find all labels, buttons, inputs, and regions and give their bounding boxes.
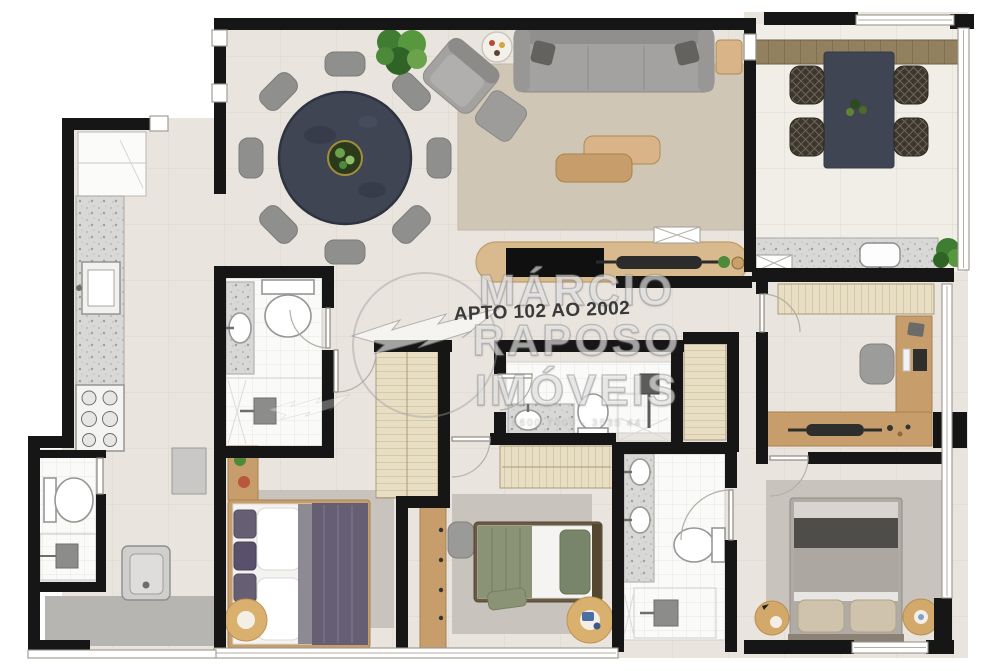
outdoor-plant-icon	[850, 99, 860, 109]
console-plant-icon	[718, 256, 730, 268]
refrigerator	[78, 132, 146, 196]
mbath-shower-head-icon	[654, 600, 678, 626]
toy-icon	[582, 612, 594, 621]
bed-top-strip	[794, 502, 898, 518]
bath2-sink-icon	[515, 410, 541, 430]
living-window	[212, 30, 227, 46]
sofa	[514, 28, 714, 92]
sofa-side-table	[716, 40, 742, 74]
bedroom2-door-leaf	[452, 437, 490, 441]
bedroom2-chair	[448, 522, 474, 558]
service-window-sill	[28, 650, 216, 658]
service-shower-head-icon	[56, 544, 78, 568]
table-texture	[304, 126, 336, 144]
bath1-toilet-icon	[265, 295, 311, 337]
pillow	[234, 510, 256, 538]
blanket-fold	[298, 504, 314, 644]
dark-blanket-band	[794, 518, 898, 548]
drinks-side-table	[482, 32, 512, 62]
nightstand-item	[918, 614, 924, 620]
floor-plan-drawing	[0, 0, 1000, 671]
bed-cover	[794, 548, 898, 594]
office-wardrobe	[778, 284, 934, 314]
knob	[439, 528, 443, 532]
balcony-sink-icon	[860, 243, 900, 267]
bath2-toilet-icon	[578, 394, 608, 430]
document-icon	[903, 349, 910, 371]
table-texture	[358, 182, 386, 198]
centerpiece-leaf	[346, 156, 355, 165]
knob	[439, 616, 443, 620]
pillow	[798, 600, 844, 632]
service-toilet-icon	[55, 478, 93, 522]
outdoor-plant-leaf	[846, 108, 854, 116]
table-texture	[358, 116, 378, 128]
desk-item	[907, 322, 925, 337]
soundbar-icon	[616, 256, 702, 269]
bathroom1-door-leaf	[326, 308, 330, 348]
green-duvet	[478, 526, 532, 598]
bedroom2-desk-unit	[420, 504, 446, 648]
balcony-door	[744, 34, 756, 60]
desk-dot	[906, 425, 911, 430]
drink-icon	[494, 50, 500, 56]
service-cabinet	[172, 448, 206, 494]
bath1-toilet-tank	[262, 280, 314, 294]
drink-icon	[489, 40, 495, 46]
shaft-x-box-living	[654, 227, 700, 243]
master-bath-door-leaf	[729, 490, 733, 540]
monitor-icon	[913, 349, 927, 371]
cabinet-flower-icon	[238, 476, 250, 488]
laundry-faucet-icon	[143, 582, 150, 589]
pillow-white	[257, 508, 301, 570]
headboard	[592, 524, 601, 602]
round-rug-center	[237, 611, 255, 629]
bedroom2-single-bed	[474, 522, 602, 611]
service-bath-door-leaf	[97, 458, 103, 494]
mbath-sink2-icon	[630, 507, 650, 533]
floor-plan: MÁRCIO RAPOSO IMÓVEIS 9600 7000 · 3535 4…	[0, 0, 1000, 671]
drink-icon	[499, 42, 505, 48]
centerpiece-leaf	[335, 148, 345, 158]
kitchen-faucet-icon	[76, 285, 82, 291]
plant-leaf	[407, 49, 427, 69]
pillow	[234, 542, 256, 570]
nightstand-ring	[770, 616, 782, 628]
purple-duvet	[312, 503, 368, 645]
bath2-shower-head-icon	[640, 374, 659, 394]
knob	[439, 588, 443, 592]
pillow	[850, 600, 896, 632]
mbath-toilet-icon	[674, 528, 714, 562]
master-double-bed	[788, 498, 904, 648]
service-entry-door-frame	[150, 116, 168, 131]
master-bedroom-door-leaf	[770, 456, 808, 460]
tv-icon	[506, 248, 604, 277]
centerpiece-leaf	[339, 161, 347, 169]
pillow	[234, 574, 256, 602]
living-window	[212, 84, 227, 102]
kitchen-sink-basin	[88, 270, 114, 306]
bathroom2-door-leaf	[498, 374, 532, 378]
office-chair	[860, 344, 894, 384]
plant-leaf	[376, 47, 394, 65]
toy-icon	[594, 623, 601, 630]
service-gray-floor	[45, 596, 215, 646]
knob	[439, 558, 443, 562]
desk-dot	[887, 425, 893, 431]
mbath-toilet-tank	[712, 528, 725, 562]
bedroom1-door-leaf	[334, 350, 338, 392]
console-bowl-icon	[732, 257, 744, 269]
green-pillow	[560, 530, 590, 594]
laptop-icon	[806, 424, 864, 436]
office-door-leaf	[760, 294, 764, 332]
desk-dot	[898, 432, 903, 437]
mbath-sink1-icon	[630, 459, 650, 485]
hall-closet	[684, 344, 726, 440]
outdoor-plant-leaf	[859, 106, 867, 114]
table-centerpiece-plant-icon	[328, 141, 362, 175]
